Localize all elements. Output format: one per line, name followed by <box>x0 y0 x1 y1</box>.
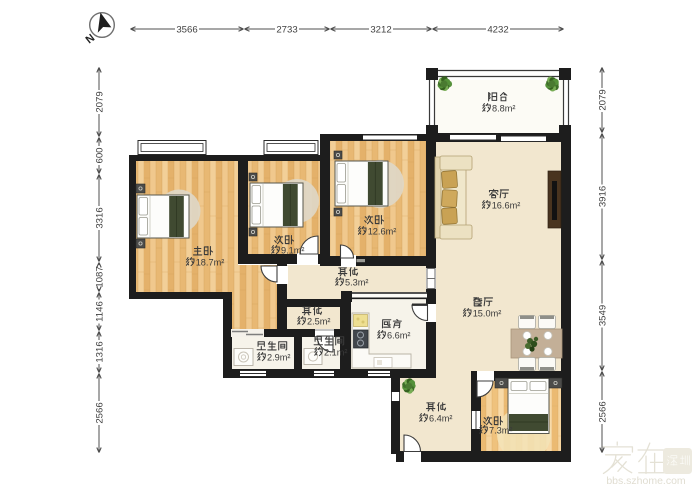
svg-text:1316: 1316 <box>94 341 105 362</box>
svg-text:5.3m²: 5.3m² <box>345 277 369 287</box>
svg-text:2.5m²: 2.5m² <box>307 316 331 326</box>
svg-text:4232: 4232 <box>487 24 508 35</box>
svg-text:3212: 3212 <box>370 24 391 35</box>
svg-text:3916: 3916 <box>597 186 608 207</box>
svg-text:9.1m²: 9.1m² <box>281 245 305 255</box>
svg-text:2733: 2733 <box>276 24 297 35</box>
svg-text:7.3m²: 7.3m² <box>489 425 513 435</box>
svg-text:1087: 1087 <box>94 266 105 287</box>
svg-text:2.1m²: 2.1m² <box>324 347 348 357</box>
svg-text:15.0m²: 15.0m² <box>473 308 502 318</box>
svg-text:18.7m²: 18.7m² <box>196 257 225 267</box>
svg-text:2566: 2566 <box>597 401 608 422</box>
svg-text:2079: 2079 <box>94 91 105 112</box>
svg-text:600: 600 <box>94 147 105 163</box>
svg-text:2.9m²: 2.9m² <box>267 352 291 362</box>
svg-text:8.8m²: 8.8m² <box>492 103 516 113</box>
svg-text:3316: 3316 <box>94 207 105 228</box>
svg-text:3549: 3549 <box>597 305 608 326</box>
svg-text:bbs.szhome.com: bbs.szhome.com <box>606 475 686 487</box>
svg-text:6.6m²: 6.6m² <box>387 330 411 340</box>
svg-text:12.6m²: 12.6m² <box>368 226 397 236</box>
svg-text:1146: 1146 <box>94 301 105 322</box>
svg-text:2079: 2079 <box>597 89 608 110</box>
svg-text:3566: 3566 <box>176 24 197 35</box>
svg-text:2566: 2566 <box>94 402 105 423</box>
svg-text:6.4m²: 6.4m² <box>429 413 453 423</box>
svg-text:16.6m²: 16.6m² <box>492 200 521 210</box>
